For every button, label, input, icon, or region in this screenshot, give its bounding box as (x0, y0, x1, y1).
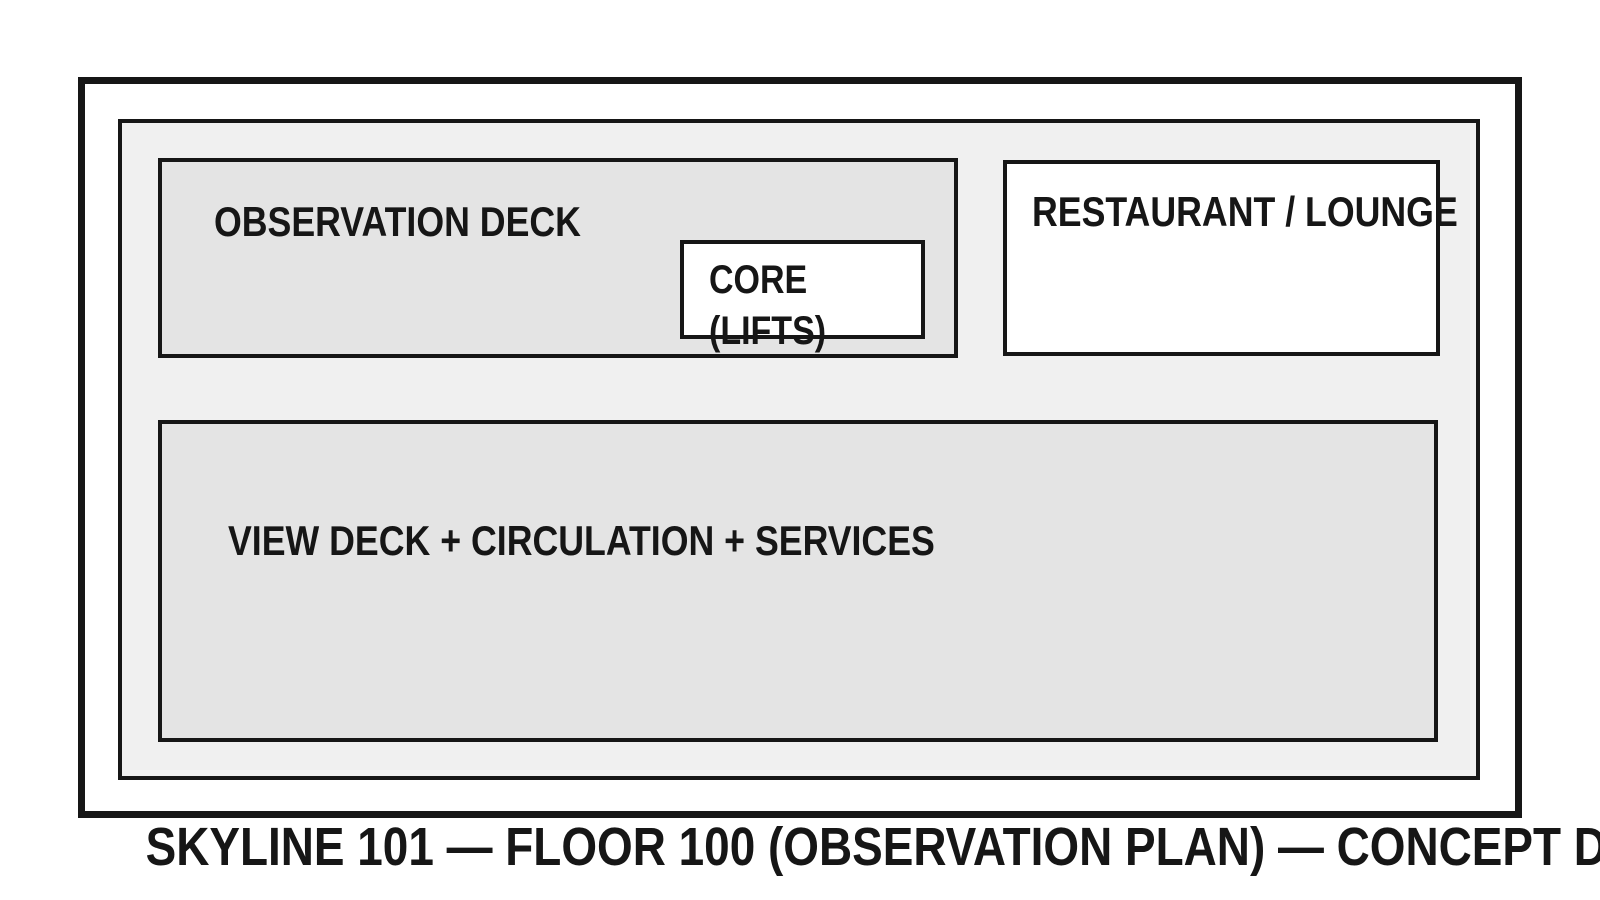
floor-plate: OBSERVATION DECK CORE(LIFTS) RESTAURANT … (118, 119, 1480, 780)
drawing-caption: SKYLINE 101 — FLOOR 100 (OBSERVATION PLA… (0, 818, 1600, 877)
drawing-caption-text: SKYLINE 101 — FLOOR 100 (OBSERVATION PLA… (146, 818, 1600, 877)
zone-core-lifts: CORE(LIFTS) (680, 240, 925, 339)
core-label-line1: CORE (709, 255, 826, 306)
drawing-outer-frame: OBSERVATION DECK CORE(LIFTS) RESTAURANT … (78, 77, 1522, 818)
zone-view-deck: VIEW DECK + CIRCULATION + SERVICES (158, 420, 1438, 742)
observation-deck-label: OBSERVATION DECK (214, 201, 581, 243)
zone-restaurant-lounge: RESTAURANT / LOUNGE (1003, 160, 1440, 356)
view-deck-label: VIEW DECK + CIRCULATION + SERVICES (228, 520, 935, 562)
core-lifts-label: CORE(LIFTS) (709, 255, 826, 357)
restaurant-lounge-label: RESTAURANT / LOUNGE (1032, 191, 1458, 233)
core-label-line2: (LIFTS) (709, 306, 826, 357)
concept-drawing-canvas: OBSERVATION DECK CORE(LIFTS) RESTAURANT … (0, 0, 1600, 900)
